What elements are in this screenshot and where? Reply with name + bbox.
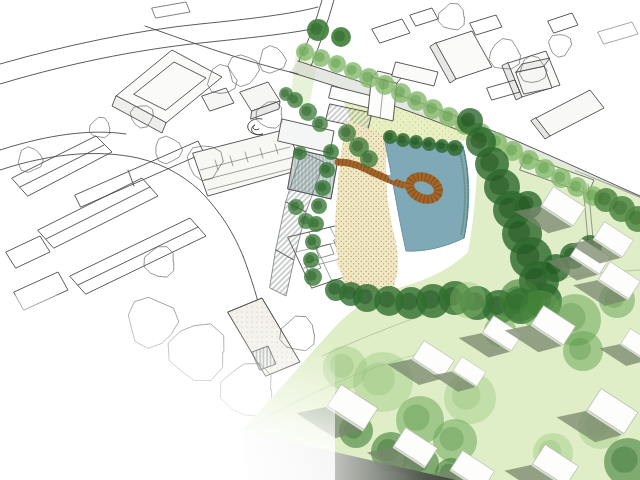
site-plan-perspective-sketch (0, 0, 640, 480)
screenshot-root: { "palette": { "background": "#ffffff", … (0, 0, 640, 480)
fade-overlay (0, 295, 335, 480)
architectural-site-sketch-rendering (0, 0, 640, 480)
white-fade-overlay (0, 295, 335, 480)
